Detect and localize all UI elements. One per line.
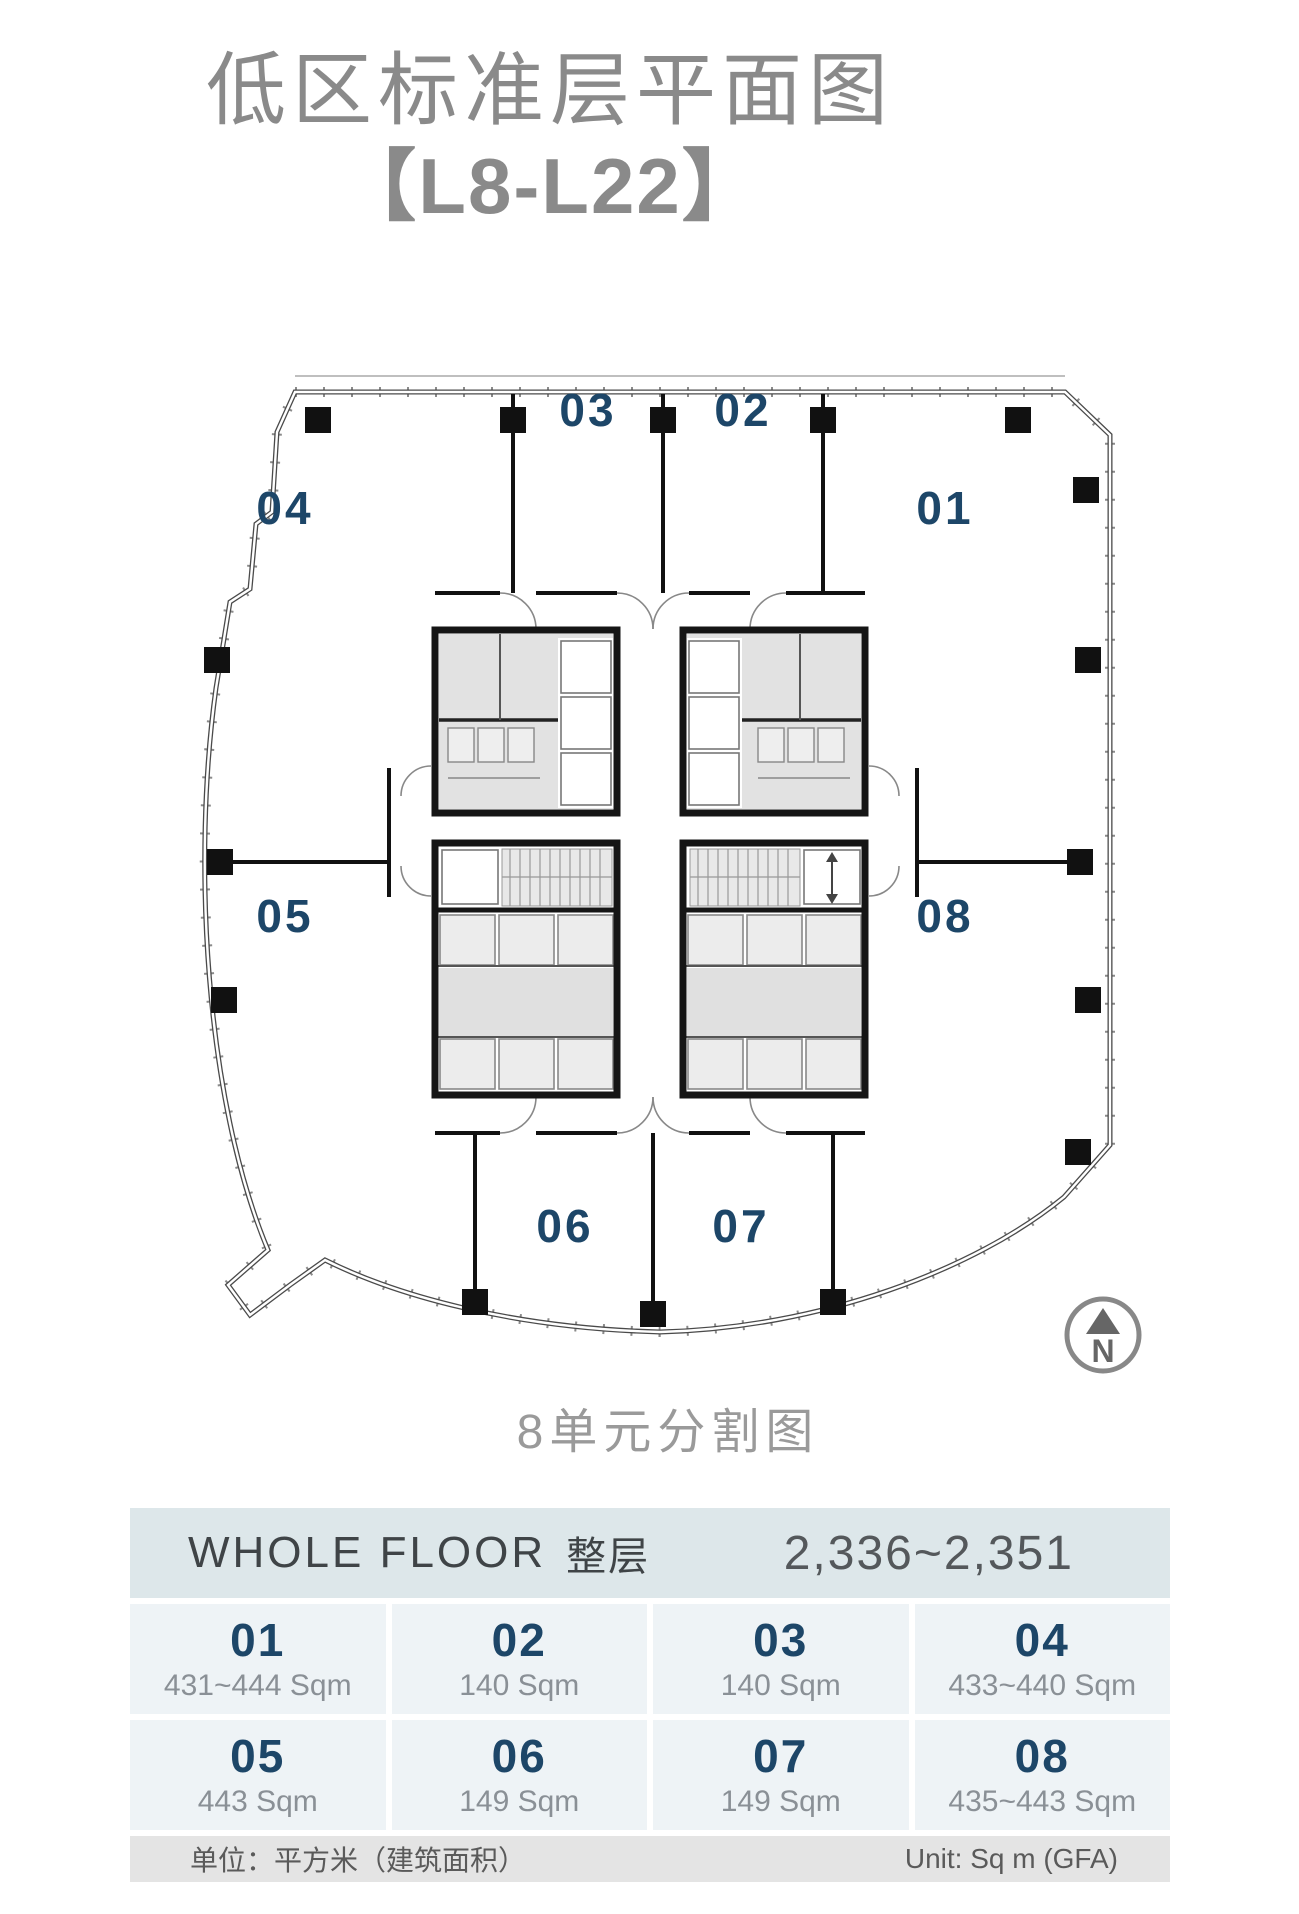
unit-cell-04: 04 433~440 Sqm: [915, 1604, 1171, 1714]
core-left-upper: [435, 630, 617, 813]
plan-caption: 8单元分割图: [148, 1392, 1188, 1462]
unit-no: 06: [492, 1733, 547, 1779]
unit-area: 433~440 Sqm: [948, 1671, 1136, 1701]
table-footer-row: 单位：平方米（建筑面积） Unit: Sq m (GFA): [130, 1836, 1170, 1882]
whole-floor-label-en: WHOLE FLOOR: [130, 1528, 546, 1578]
unit-cell-03: 03 140 Sqm: [653, 1604, 909, 1714]
table-header-row: WHOLE FLOOR 整层 2,336~2,351: [130, 1508, 1170, 1598]
unit-label-06: 06: [536, 1200, 593, 1252]
unit-cell-05: 05 443 Sqm: [130, 1720, 386, 1830]
unit-no: 08: [1015, 1733, 1070, 1779]
whole-floor-label-zh: 整层: [546, 1524, 650, 1582]
whole-floor-range: 2,336~2,351: [784, 1526, 1170, 1581]
unit-label-04: 04: [256, 482, 313, 534]
unit-no: 05: [230, 1733, 285, 1779]
page-subtitle: 【L8-L22】: [0, 124, 1100, 236]
unit-note-zh: 单位：平方米（建筑面积）: [190, 1839, 526, 1879]
unit-no: 02: [492, 1617, 547, 1663]
compass-letter: N: [1091, 1333, 1114, 1369]
core-right-lower: [683, 843, 865, 1095]
unit-area: 443 Sqm: [198, 1787, 318, 1817]
building-shell: [205, 376, 1110, 1332]
unit-note-en: Unit: Sq m (GFA): [905, 1843, 1118, 1875]
unit-cell-06: 06 149 Sqm: [392, 1720, 648, 1830]
unit-cell-01: 01 431~444 Sqm: [130, 1604, 386, 1714]
unit-no: 03: [753, 1617, 808, 1663]
unit-no: 04: [1015, 1617, 1070, 1663]
floor-plan-svg: 01 02 03 04 05 06 07 08 N: [120, 300, 1160, 1420]
unit-cell-08: 08 435~443 Sqm: [915, 1720, 1171, 1830]
unit-label-02: 02: [714, 384, 771, 436]
floor-plan: 01 02 03 04 05 06 07 08 N: [120, 300, 1160, 1420]
core-left-lower: [435, 843, 617, 1095]
unit-cell-07: 07 149 Sqm: [653, 1720, 909, 1830]
compass-icon: N: [1067, 1299, 1139, 1371]
unit-area: 149 Sqm: [459, 1787, 579, 1817]
unit-area: 140 Sqm: [721, 1671, 841, 1701]
unit-cell-02: 02 140 Sqm: [392, 1604, 648, 1714]
unit-area: 435~443 Sqm: [948, 1787, 1136, 1817]
unit-area: 140 Sqm: [459, 1671, 579, 1701]
unit-area: 149 Sqm: [721, 1787, 841, 1817]
unit-no: 07: [753, 1733, 808, 1779]
unit-no: 01: [230, 1617, 285, 1663]
unit-label-07: 07: [712, 1200, 769, 1252]
core-right-upper: [683, 630, 865, 813]
unit-label-08: 08: [916, 890, 973, 942]
unit-label-03: 03: [559, 384, 616, 436]
area-table: WHOLE FLOOR 整层 2,336~2,351 01 431~444 Sq…: [130, 1508, 1170, 1882]
unit-label-05: 05: [256, 890, 313, 942]
unit-area: 431~444 Sqm: [164, 1671, 352, 1701]
table-body: 01 431~444 Sqm 02 140 Sqm 03 140 Sqm 04 …: [130, 1604, 1170, 1830]
unit-label-01: 01: [916, 482, 973, 534]
